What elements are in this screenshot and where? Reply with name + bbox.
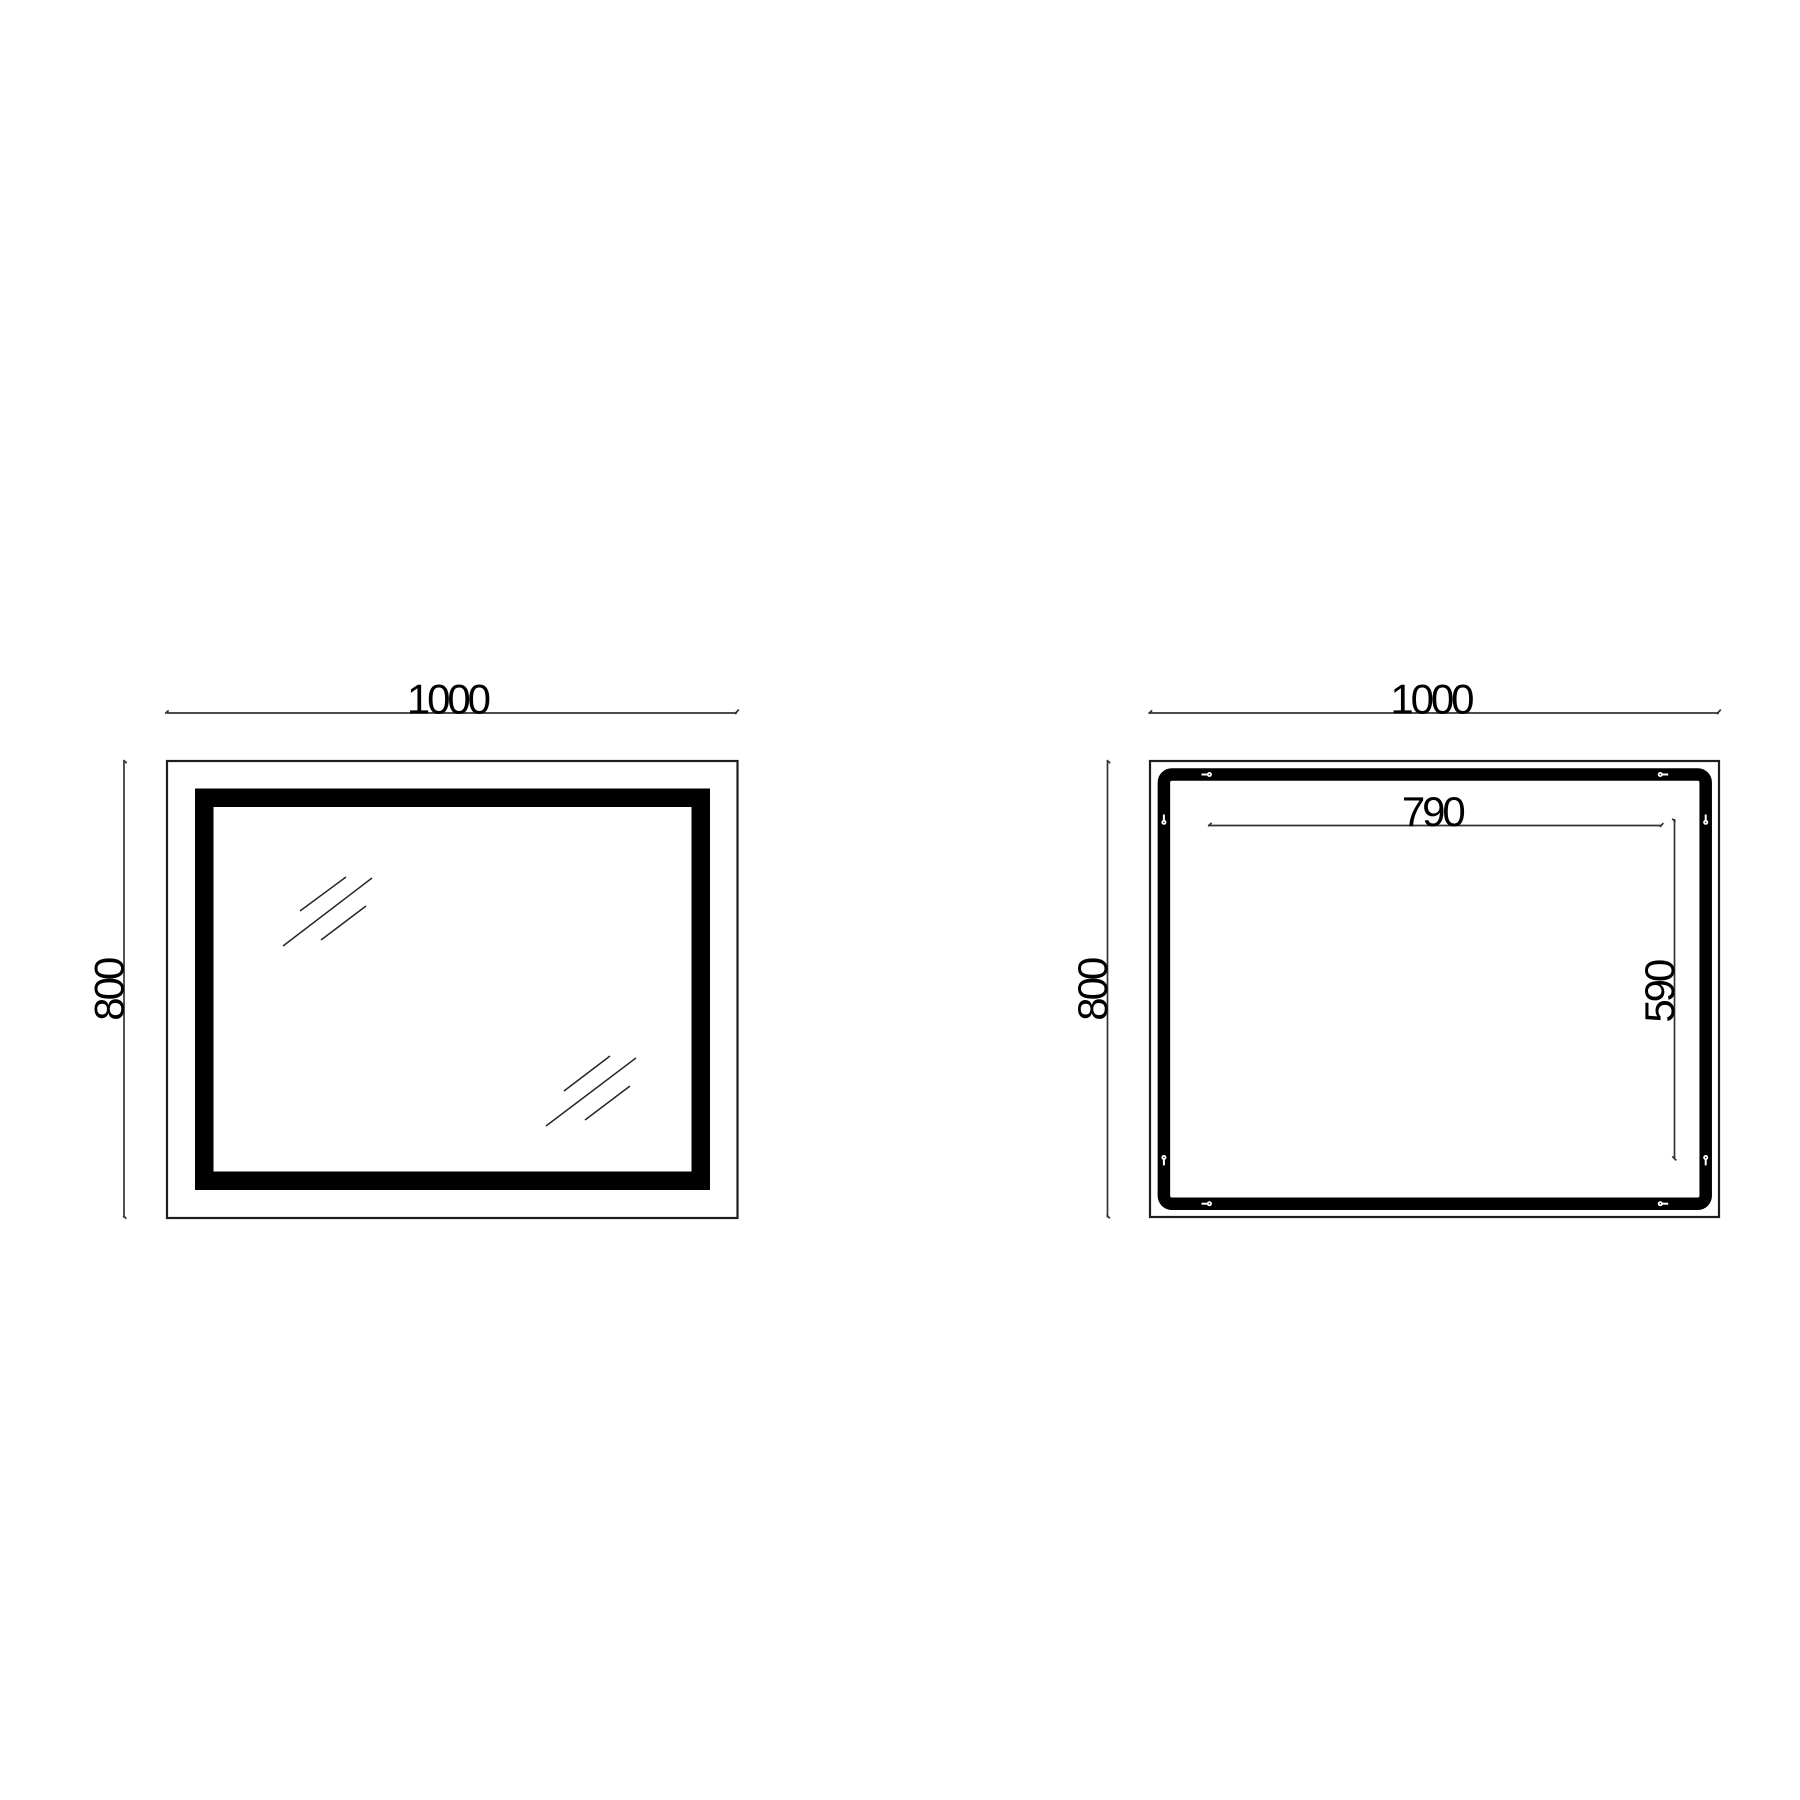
svg-text:1000: 1000 (407, 676, 490, 723)
svg-text:590: 590 (1636, 960, 1683, 1023)
svg-text:1000: 1000 (1390, 676, 1473, 723)
svg-text:790: 790 (1402, 788, 1465, 835)
svg-text:800: 800 (1069, 958, 1116, 1021)
svg-text:800: 800 (85, 958, 132, 1021)
